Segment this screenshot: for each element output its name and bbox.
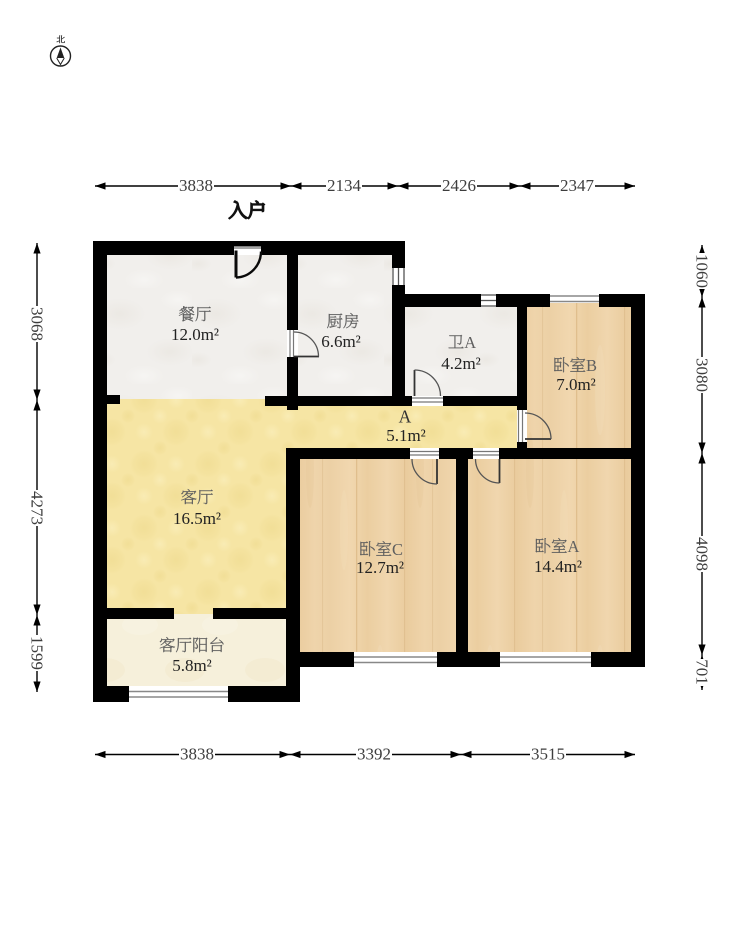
svg-text:5.8m²: 5.8m²	[172, 656, 212, 675]
svg-text:14.4m²: 14.4m²	[534, 557, 582, 576]
svg-text:A: A	[399, 407, 412, 427]
svg-text:4098: 4098	[693, 537, 712, 571]
svg-text:A: A	[464, 333, 476, 352]
svg-text:2347: 2347	[560, 176, 595, 195]
svg-text:6.6m²: 6.6m²	[321, 332, 361, 351]
svg-text:2134: 2134	[327, 176, 362, 195]
svg-text:7.0m²: 7.0m²	[556, 375, 596, 394]
svg-text:3838: 3838	[179, 176, 213, 195]
svg-text:5.1m²: 5.1m²	[386, 426, 426, 445]
svg-text:1060: 1060	[693, 254, 712, 288]
svg-text:B: B	[586, 356, 597, 375]
svg-text:4.2m²: 4.2m²	[441, 354, 481, 373]
svg-text:3838: 3838	[180, 745, 214, 764]
svg-text:701: 701	[693, 659, 712, 685]
svg-text:1599: 1599	[28, 636, 47, 670]
svg-text:A: A	[568, 537, 580, 556]
svg-text:16.5m²: 16.5m²	[173, 509, 221, 528]
svg-text:3068: 3068	[28, 307, 47, 341]
svg-text:3515: 3515	[531, 745, 565, 764]
svg-text:3392: 3392	[357, 745, 391, 764]
svg-text:4273: 4273	[28, 491, 47, 525]
svg-text:3080: 3080	[693, 358, 712, 392]
svg-text:2426: 2426	[442, 176, 476, 195]
svg-text:C: C	[392, 540, 403, 559]
svg-text:12.7m²: 12.7m²	[356, 558, 404, 577]
svg-text:12.0m²: 12.0m²	[171, 325, 219, 344]
